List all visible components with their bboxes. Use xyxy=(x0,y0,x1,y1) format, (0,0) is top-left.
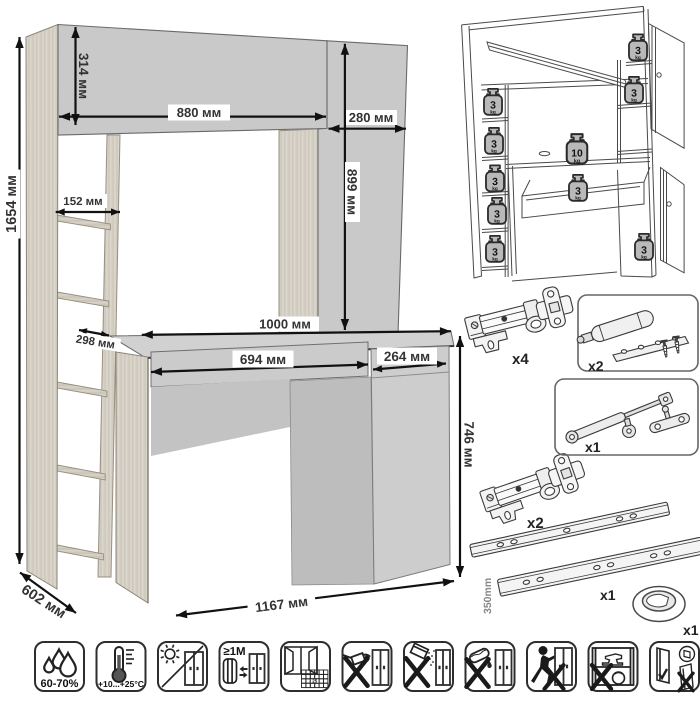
svg-text:kg: kg xyxy=(635,55,641,61)
svg-text:kg: kg xyxy=(574,158,580,164)
svg-text:60-70%: 60-70% xyxy=(41,678,79,690)
svg-text:kg: kg xyxy=(631,98,637,104)
svg-text:x1: x1 xyxy=(585,439,601,455)
svg-text:kg: kg xyxy=(575,196,581,202)
svg-text:x1: x1 xyxy=(683,622,699,638)
svg-text:314 мм: 314 мм xyxy=(76,53,91,99)
svg-text:kg: kg xyxy=(492,186,498,192)
svg-text:x4: x4 xyxy=(512,351,529,368)
svg-text:+10...+25°C: +10...+25°C xyxy=(98,679,144,689)
svg-text:899 мм: 899 мм xyxy=(345,169,360,215)
svg-text:1654 мм: 1654 мм xyxy=(4,175,20,233)
svg-text:x2: x2 xyxy=(588,358,604,374)
svg-text:880 мм: 880 мм xyxy=(177,105,222,120)
svg-text:kg: kg xyxy=(491,149,497,155)
svg-text:x1: x1 xyxy=(600,587,616,603)
svg-text:kg: kg xyxy=(490,110,496,116)
svg-text:350mm: 350mm xyxy=(482,578,494,614)
svg-text:kg: kg xyxy=(492,257,498,263)
svg-text:≥1M: ≥1M xyxy=(223,646,245,658)
svg-text:746 мм: 746 мм xyxy=(462,421,477,467)
svg-text:25: 25 xyxy=(312,679,318,684)
svg-text:264 мм: 264 мм xyxy=(384,349,430,364)
svg-text:1000 мм: 1000 мм xyxy=(259,317,311,332)
svg-text:152 мм: 152 мм xyxy=(63,196,102,208)
svg-text:kg: kg xyxy=(494,219,500,225)
svg-text:280 мм: 280 мм xyxy=(349,110,394,125)
svg-text:694 мм: 694 мм xyxy=(240,352,286,367)
svg-text:kg: kg xyxy=(641,255,647,261)
